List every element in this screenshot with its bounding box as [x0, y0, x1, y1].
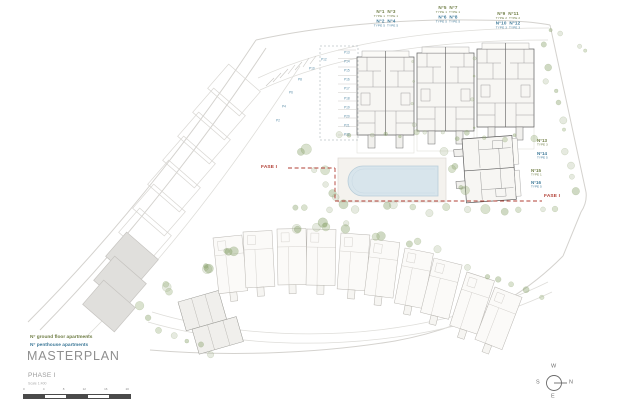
pool-area — [338, 158, 446, 202]
phase2-unit — [277, 228, 307, 293]
pool — [348, 166, 438, 196]
phase2-unit — [306, 229, 336, 294]
building-block-2 — [417, 47, 474, 144]
parking-column — [320, 46, 358, 140]
phase2-unit-row — [213, 228, 522, 358]
compass-icon — [547, 376, 568, 391]
masterplan-canvas: N°1 N°3 TYPE 1 TYPE 1 N°2 N°4 TYPE 5 TYP… — [0, 0, 620, 406]
phase2-unit — [243, 230, 275, 296]
site-plan-drawing — [0, 0, 620, 406]
building-block-3 — [477, 43, 534, 140]
